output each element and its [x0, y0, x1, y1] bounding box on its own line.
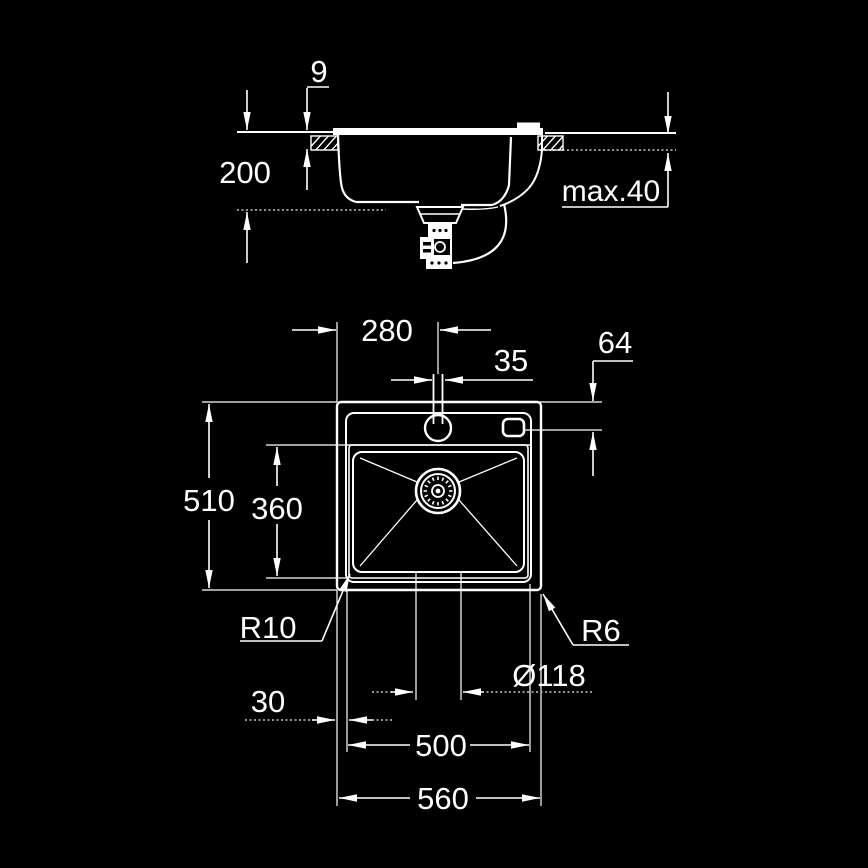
- bowl-underside-line: [463, 207, 498, 209]
- drain-side-fitting: [420, 237, 434, 259]
- bowl-bottom: [356, 202, 492, 205]
- sink-rim-profile: [333, 128, 543, 135]
- accessory-knob-profile: [517, 123, 540, 129]
- drawing-svg: 9 200 max.40: [0, 0, 868, 868]
- technical-drawing: 9 200 max.40: [0, 0, 868, 868]
- dim-label-35: 35: [494, 343, 528, 378]
- r6-leader-arrow: [543, 594, 573, 645]
- dim-label-280: 280: [361, 313, 413, 348]
- drain-trap-opening: [435, 242, 445, 252]
- dim-label-64: 64: [598, 325, 632, 360]
- drain-plan: [416, 469, 460, 513]
- bowl-left-wall: [338, 135, 356, 202]
- drain-flange: [417, 207, 463, 223]
- dim-label-30: 30: [251, 684, 285, 719]
- dim-label-9: 9: [310, 54, 327, 89]
- drain-center-dot: [436, 489, 441, 494]
- dim-label-500: 500: [415, 728, 467, 763]
- dim-label-max40: max.40: [562, 175, 660, 208]
- sink-outer-shell: [500, 135, 542, 206]
- dim-label-r6: R6: [581, 613, 621, 648]
- dim-label-r10: R10: [240, 610, 297, 645]
- tap-hole: [425, 415, 451, 441]
- drain-assembly: [417, 207, 463, 269]
- bowl-right-wall: [492, 137, 511, 205]
- accessory-hole: [503, 419, 524, 436]
- dim-label-560: 560: [417, 781, 469, 816]
- dim-label-360: 360: [251, 491, 303, 526]
- dim-label-200: 200: [219, 155, 271, 190]
- dim-label-510: 510: [183, 483, 235, 518]
- dim-label-118: Ø118: [512, 658, 586, 693]
